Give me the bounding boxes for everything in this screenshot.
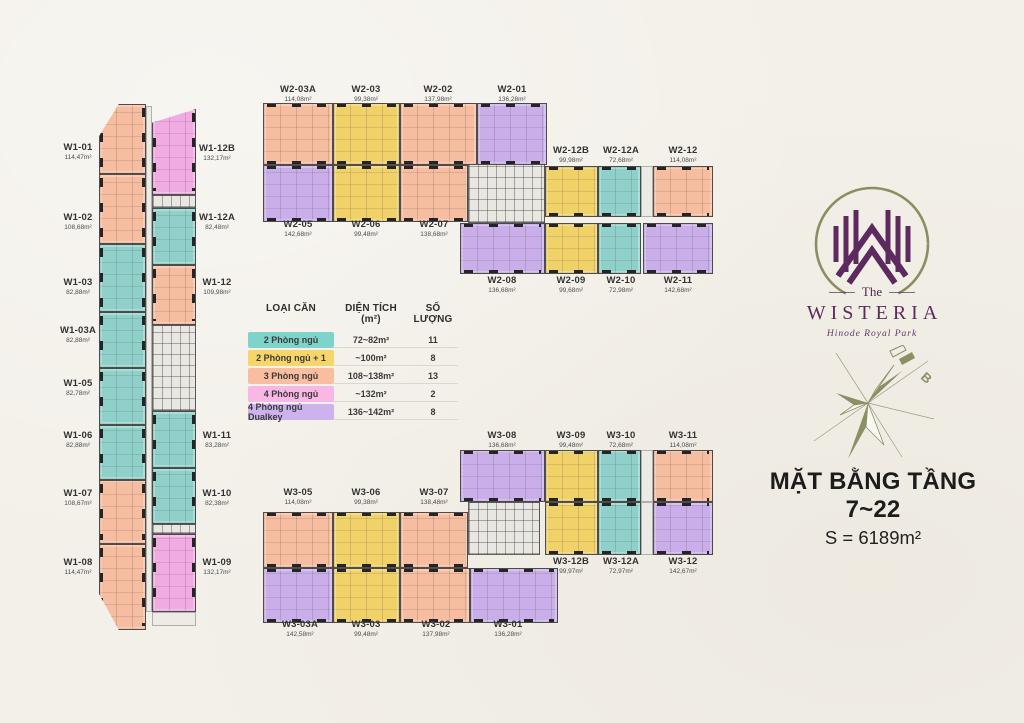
unit-area: 99,98m² xyxy=(553,157,589,164)
unit-name: W2-08 xyxy=(488,276,517,287)
unit-area: 82,88m² xyxy=(60,337,96,344)
unit-W3-12B xyxy=(545,502,598,555)
elevator-core xyxy=(152,325,196,411)
unit-name: W3-02 xyxy=(422,620,451,631)
logo-the: The xyxy=(862,284,882,300)
legend-header-type: LOẠI CĂN xyxy=(248,303,334,325)
unit-name: W1-12 xyxy=(203,278,232,289)
unit-W1-12B xyxy=(152,109,196,195)
legend-row: 4 Phòng ngủ~132m²2 xyxy=(248,386,458,402)
unit-label-W2-05: W2-05142,68m² xyxy=(284,220,313,238)
unit-name: W2-06 xyxy=(352,220,381,231)
unit-name: W2-12 xyxy=(669,146,698,157)
unit-W3-03A xyxy=(263,568,333,623)
unit-name: W3-03 xyxy=(352,620,381,631)
unit-area: 137,98m² xyxy=(424,96,453,103)
unit-area: 136,68m² xyxy=(488,442,517,449)
unit-label-W2-11: W2-11142,68m² xyxy=(664,276,692,294)
unit-name: W3-11 xyxy=(669,431,697,442)
unit-label-W2-06: W2-0699,48m² xyxy=(352,220,381,238)
unit-W3-07 xyxy=(400,512,468,568)
unit-area: 137,98m² xyxy=(422,631,451,638)
unit-name: W1-03A xyxy=(60,326,96,337)
unit-area: 99,38m² xyxy=(352,499,381,506)
floor-plan-page: W1-01114,47m²W1-02108,68m²W1-0382,88m²W1… xyxy=(0,0,1024,723)
unit-area: 136,68m² xyxy=(488,287,517,294)
unit-label-W1-10: W1-1082,38m² xyxy=(203,489,232,507)
unit-name: W2-12B xyxy=(553,146,589,157)
unit-name: W3-01 xyxy=(494,620,523,631)
unit-name: W3-06 xyxy=(352,488,381,499)
unit-area: 142,68m² xyxy=(284,231,313,238)
unit-label-W1-05: W1-0582,78m² xyxy=(64,379,93,397)
logo-subtitle: Hinode Royal Park xyxy=(787,329,957,339)
unit-name: W1-12B xyxy=(199,144,235,155)
unit-name: W3-10 xyxy=(607,431,636,442)
unit-label-W3-12: W3-12142,67m² xyxy=(669,557,698,575)
elevator-core xyxy=(152,195,196,208)
unit-name: W2-02 xyxy=(424,85,453,96)
elevator-core xyxy=(152,524,196,534)
unit-label-W3-05: W3-05114,08m² xyxy=(284,488,313,506)
logo-rule-left xyxy=(829,292,855,293)
legend-header-qty: SỐ LƯỢNG xyxy=(408,303,458,325)
unit-name: W2-12A xyxy=(603,146,639,157)
unit-area: 99,48m² xyxy=(352,231,381,238)
unit-W1-03 xyxy=(99,244,146,312)
unit-name: W2-11 xyxy=(664,276,692,287)
unit-W1-10 xyxy=(152,468,196,524)
unit-area: 82,38m² xyxy=(203,500,232,507)
legend-qty-value: 11 xyxy=(408,332,458,348)
legend-qty-value: 8 xyxy=(408,350,458,366)
unit-W3-12 xyxy=(653,502,713,555)
unit-label-W2-12: W2-12114,08m² xyxy=(669,146,698,164)
unit-W3-05 xyxy=(263,512,333,568)
unit-label-W3-12A: W3-12A72,97m² xyxy=(603,557,639,575)
unit-area: 114,08m² xyxy=(280,96,316,103)
unit-name: W2-10 xyxy=(607,276,636,287)
legend-header: LOẠI CĂN DIỆN TÍCH (m²) SỐ LƯỢNG xyxy=(248,303,458,325)
unit-label-W1-02: W1-02108,68m² xyxy=(64,213,93,231)
unit-area: 136,28m² xyxy=(494,631,523,638)
legend-type-chip: 3 Phòng ngủ xyxy=(248,368,334,384)
unit-label-W1-03A: W1-03A82,88m² xyxy=(60,326,96,344)
unit-W1-02 xyxy=(99,174,146,244)
unit-W1-03A xyxy=(99,312,146,368)
elevator-core xyxy=(468,163,545,223)
unit-area: 108,67m² xyxy=(64,500,93,507)
unit-label-W2-12A: W2-12A72,68m² xyxy=(603,146,639,164)
unit-area: 142,68m² xyxy=(664,287,692,294)
unit-name: W1-12A xyxy=(199,213,235,224)
corridor xyxy=(641,450,653,502)
logo-the-row: The xyxy=(787,284,957,300)
unit-W2-12 xyxy=(653,166,713,217)
unit-area: 99,68m² xyxy=(557,287,586,294)
unit-area: 142,67m² xyxy=(669,568,698,575)
unit-area: 142,58m² xyxy=(282,631,318,638)
unit-label-W1-03: W1-0382,88m² xyxy=(64,278,93,296)
page-title-line1: MẶT BẰNG TẦNG 7~22 xyxy=(740,468,1006,524)
unit-area: 114,08m² xyxy=(669,442,697,449)
unit-name: W1-06 xyxy=(64,431,93,442)
unit-W2-02 xyxy=(400,103,477,165)
unit-W1-12A xyxy=(152,208,196,265)
unit-area: 99,48m² xyxy=(557,442,586,449)
unit-W3-03 xyxy=(333,568,400,623)
legend-row: 3 Phòng ngủ108~138m²13 xyxy=(248,368,458,384)
logo-rule-right xyxy=(889,292,915,293)
unit-W1-12 xyxy=(152,265,196,325)
unit-name: W3-12 xyxy=(669,557,698,568)
unit-label-W1-01: W1-01114,47m² xyxy=(64,143,93,161)
legend-area-value: 108~138m² xyxy=(334,368,408,384)
legend-type-chip: 4 Phòng ngủ Dualkey xyxy=(248,404,334,420)
unit-W1-11 xyxy=(152,411,196,468)
unit-name: W3-09 xyxy=(557,431,586,442)
corridor xyxy=(641,502,653,555)
unit-area: 72,68m² xyxy=(603,157,639,164)
unit-W2-12B xyxy=(545,166,598,217)
unit-area: 114,08m² xyxy=(669,157,698,164)
unit-name: W2-07 xyxy=(420,220,449,231)
unit-W2-11 xyxy=(643,223,713,274)
unit-label-W2-01: W2-01136,28m² xyxy=(498,85,527,103)
unit-name: W2-03A xyxy=(280,85,316,96)
unit-area: 132,17m² xyxy=(199,155,235,162)
unit-label-W3-03: W3-0399,48m² xyxy=(352,620,381,638)
unit-label-W2-07: W2-07138,68m² xyxy=(420,220,449,238)
unit-name: W1-10 xyxy=(203,489,232,500)
unit-label-W3-09: W3-0999,48m² xyxy=(557,431,586,449)
unit-label-W2-03A: W2-03A114,08m² xyxy=(280,85,316,103)
unit-label-W3-07: W3-07138,48m² xyxy=(420,488,449,506)
unit-W2-01 xyxy=(477,103,547,165)
legend-type-chip: 2 Phòng ngủ + 1 xyxy=(248,350,334,366)
unit-label-W1-09: W1-09132,17m² xyxy=(203,558,232,576)
unit-name: W2-01 xyxy=(498,85,527,96)
unit-label-W1-11: W1-1183,28m² xyxy=(203,431,231,449)
unit-area: 114,47m² xyxy=(64,154,93,161)
unit-W2-09 xyxy=(545,223,598,274)
legend-type-chip: 2 Phòng ngủ xyxy=(248,332,334,348)
unit-W3-12A xyxy=(598,502,641,555)
unit-label-W2-10: W2-1072,98m² xyxy=(607,276,636,294)
unit-label-W1-08: W1-08114,47m² xyxy=(64,558,93,576)
unit-name: W3-03A xyxy=(282,620,318,631)
unit-name: W1-07 xyxy=(64,489,93,500)
unit-W3-09 xyxy=(545,450,598,502)
legend-qty-value: 13 xyxy=(408,368,458,384)
project-logo: The WISTERIA Hinode Royal Park xyxy=(787,184,957,339)
unit-W1-05 xyxy=(99,368,146,425)
unit-area: 99,48m² xyxy=(352,631,381,638)
unit-name: W2-03 xyxy=(352,85,381,96)
unit-name: W1-09 xyxy=(203,558,232,569)
unit-W3-01 xyxy=(470,568,558,623)
unit-label-W2-12B: W2-12B99,98m² xyxy=(553,146,589,164)
unit-label-W1-07: W1-07108,67m² xyxy=(64,489,93,507)
unit-W3-08 xyxy=(460,450,545,502)
unit-name: W3-08 xyxy=(488,431,517,442)
unit-area: 108,68m² xyxy=(64,224,93,231)
unit-label-W3-10: W3-1072,68m² xyxy=(607,431,636,449)
unit-name: W2-05 xyxy=(284,220,313,231)
unit-W1-07 xyxy=(99,480,146,544)
unit-W1-08 xyxy=(99,544,146,630)
unit-label-W1-12B: W1-12B132,17m² xyxy=(199,144,235,162)
unit-name: W3-12A xyxy=(603,557,639,568)
legend: LOẠI CĂN DIỆN TÍCH (m²) SỐ LƯỢNG 2 Phòng… xyxy=(248,303,458,422)
compass: B xyxy=(806,345,941,468)
legend-rows: 2 Phòng ngủ72~82m²112 Phòng ngủ + 1~100m… xyxy=(248,332,458,420)
unit-name: W1-11 xyxy=(203,431,231,442)
corridor xyxy=(641,166,653,217)
unit-W2-12A xyxy=(598,166,641,217)
unit-W3-11 xyxy=(653,450,713,502)
unit-label-W3-03A: W3-03A142,58m² xyxy=(282,620,318,638)
unit-W2-03 xyxy=(333,103,400,165)
unit-area: 72,68m² xyxy=(607,442,636,449)
legend-header-area: DIỆN TÍCH (m²) xyxy=(334,303,408,325)
unit-label-W3-12B: W3-12B99,97m² xyxy=(553,557,589,575)
legend-area-value: 136~142m² xyxy=(334,404,408,420)
elevator-core xyxy=(468,502,540,555)
unit-name: W1-02 xyxy=(64,213,93,224)
unit-label-W3-06: W3-0699,38m² xyxy=(352,488,381,506)
unit-label-W1-12A: W1-12A82,48m² xyxy=(199,213,235,231)
unit-area: 82,88m² xyxy=(64,442,93,449)
unit-W1-06 xyxy=(99,425,146,480)
legend-row: 4 Phòng ngủ Dualkey136~142m²8 xyxy=(248,404,458,420)
unit-label-W2-08: W2-08136,68m² xyxy=(488,276,517,294)
unit-area: 82,78m² xyxy=(64,390,93,397)
unit-label-W2-02: W2-02137,98m² xyxy=(424,85,453,103)
unit-W1-01 xyxy=(99,104,146,174)
unit-W3-02 xyxy=(400,568,470,623)
unit-name: W1-05 xyxy=(64,379,93,390)
unit-area: 99,38m² xyxy=(352,96,381,103)
unit-label-W1-06: W1-0682,88m² xyxy=(64,431,93,449)
unit-W2-08 xyxy=(460,223,545,274)
unit-W3-06 xyxy=(333,512,400,568)
unit-W2-06 xyxy=(333,165,400,222)
unit-name: W3-12B xyxy=(553,557,589,568)
unit-W2-03A xyxy=(263,103,333,165)
legend-row: 2 Phòng ngủ72~82m²11 xyxy=(248,332,458,348)
unit-name: W1-01 xyxy=(64,143,93,154)
unit-area: 99,97m² xyxy=(553,568,589,575)
logo-name: WISTERIA xyxy=(792,302,957,325)
unit-name: W3-05 xyxy=(284,488,313,499)
legend-area-value: ~100m² xyxy=(334,350,408,366)
unit-label-W3-08: W3-08136,68m² xyxy=(488,431,517,449)
legend-area-value: ~132m² xyxy=(334,386,408,402)
unit-area: 82,48m² xyxy=(199,224,235,231)
unit-area: 138,48m² xyxy=(420,499,449,506)
main-title: MẶT BẰNG TẦNG 7~22 S = 6189m² xyxy=(740,468,1006,549)
compass-icon: B xyxy=(806,345,941,463)
unit-W3-10 xyxy=(598,450,641,502)
legend-qty-value: 2 xyxy=(408,386,458,402)
unit-W2-05 xyxy=(263,165,333,222)
unit-name: W1-08 xyxy=(64,558,93,569)
unit-label-W2-09: W2-0999,68m² xyxy=(557,276,586,294)
unit-label-W3-02: W3-02137,98m² xyxy=(422,620,451,638)
legend-area-value: 72~82m² xyxy=(334,332,408,348)
unit-W2-10 xyxy=(598,223,641,274)
legend-qty-value: 8 xyxy=(408,404,458,420)
unit-area: 72,97m² xyxy=(603,568,639,575)
unit-name: W2-09 xyxy=(557,276,586,287)
unit-label-W2-03: W2-0399,38m² xyxy=(352,85,381,103)
unit-area: 83,28m² xyxy=(203,442,231,449)
unit-area: 136,28m² xyxy=(498,96,527,103)
legend-type-chip: 4 Phòng ngủ xyxy=(248,386,334,402)
corridor xyxy=(152,612,196,626)
unit-area: 82,88m² xyxy=(64,289,93,296)
unit-name: W1-03 xyxy=(64,278,93,289)
unit-area: 109,98m² xyxy=(203,289,232,296)
page-title-line2: S = 6189m² xyxy=(740,527,1006,549)
unit-W1-09 xyxy=(152,534,196,612)
unit-area: 132,17m² xyxy=(203,569,232,576)
legend-row: 2 Phòng ngủ + 1~100m²8 xyxy=(248,350,458,366)
unit-area: 72,98m² xyxy=(607,287,636,294)
unit-W2-07 xyxy=(400,165,468,222)
unit-area: 114,08m² xyxy=(284,499,313,506)
unit-label-W1-12: W1-12109,98m² xyxy=(203,278,232,296)
compass-north-label: B xyxy=(918,369,935,386)
unit-label-W3-11: W3-11114,08m² xyxy=(669,431,697,449)
unit-name: W3-07 xyxy=(420,488,449,499)
unit-label-W3-01: W3-01136,28m² xyxy=(494,620,523,638)
unit-area: 114,47m² xyxy=(64,569,93,576)
unit-area: 138,68m² xyxy=(420,231,449,238)
